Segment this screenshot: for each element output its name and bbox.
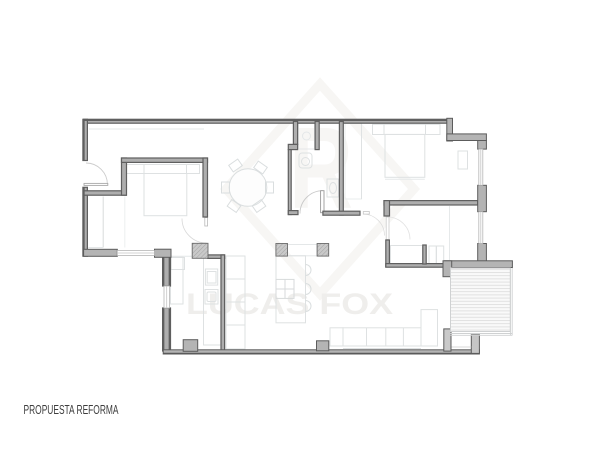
- svg-text:PROPUESTA REFORMA: PROPUESTA REFORMA: [24, 403, 119, 417]
